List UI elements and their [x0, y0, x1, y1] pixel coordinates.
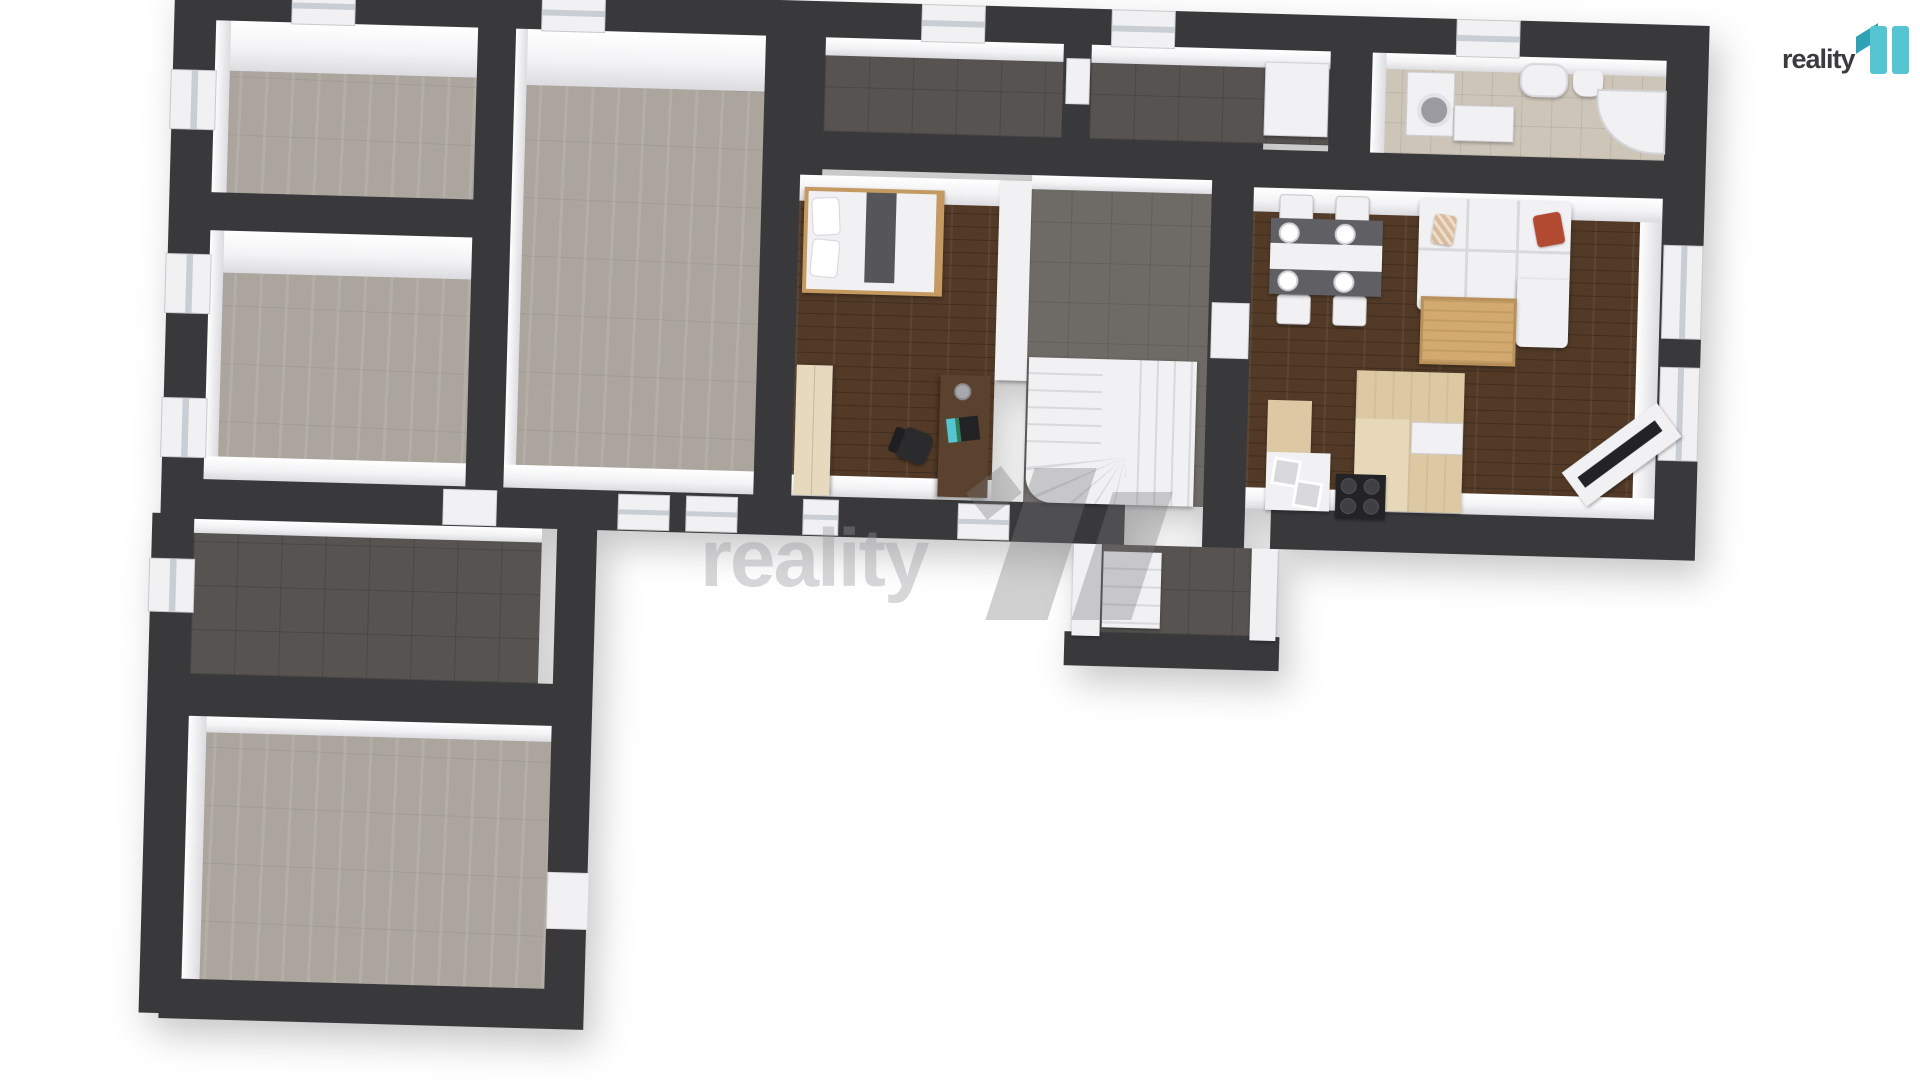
bed-runner [864, 192, 897, 283]
washing-machine [1405, 72, 1455, 137]
brand-logo-digit [1870, 26, 1887, 74]
burner [1363, 498, 1379, 514]
wardrobe [793, 365, 833, 496]
kitchen-sink-unit [1265, 452, 1331, 512]
window [1661, 245, 1704, 340]
sofa-chaise [1516, 279, 1570, 348]
brand-logo: reality [1782, 16, 1914, 82]
washing-machine-door [1417, 93, 1452, 128]
window [1456, 19, 1521, 59]
cooktop [1335, 474, 1386, 519]
wall-face [209, 230, 472, 279]
wall-wing-right [543, 529, 597, 1027]
red-pillow [1532, 211, 1565, 248]
brand-logo-digit [1892, 26, 1909, 74]
room-garage [181, 716, 551, 989]
wall-face [1370, 53, 1387, 153]
window [291, 0, 356, 26]
kitchen-cabinet-front [1411, 422, 1464, 455]
plate [1334, 224, 1356, 246]
room-lower-hallway [190, 519, 542, 684]
vanity-counter [1453, 105, 1514, 143]
plate [1277, 270, 1299, 292]
building-plan [97, 0, 1747, 1080]
coffee-table [1419, 296, 1517, 367]
sink-basin [1291, 479, 1323, 511]
burner [1363, 478, 1379, 494]
bed [802, 187, 945, 297]
window [685, 496, 738, 533]
wall-face [215, 20, 478, 77]
dining-chair [1332, 296, 1367, 327]
floorplan-render: reality reality [0, 0, 1920, 1080]
burner [1340, 478, 1356, 494]
dining-table [1269, 218, 1383, 297]
desk [937, 375, 990, 498]
table-runner [1270, 243, 1383, 272]
wash-basin [1520, 63, 1569, 98]
kitchen-counter [1267, 400, 1312, 453]
stair-winders [1025, 455, 1126, 505]
window [802, 499, 839, 536]
desk-lamp [954, 383, 971, 400]
pillow [811, 197, 841, 236]
garage-door [546, 872, 590, 930]
room-large-empty [503, 29, 766, 495]
window [148, 558, 195, 613]
burner [1340, 498, 1356, 514]
door [442, 489, 497, 526]
pillow [809, 238, 841, 279]
window [957, 503, 1010, 540]
window [921, 4, 986, 44]
brand-logo-text: reality [1782, 44, 1855, 75]
stair-flight [1026, 357, 1103, 461]
window [160, 397, 208, 458]
winder-staircase [1025, 357, 1197, 507]
entry-steps [1102, 551, 1162, 629]
door [1210, 302, 1250, 359]
door [1065, 58, 1090, 105]
vestibule-wall-left [1071, 543, 1102, 636]
window [164, 253, 212, 314]
closet [1263, 62, 1329, 138]
stair-flight [1121, 360, 1197, 507]
dining-chair [1276, 294, 1311, 325]
plate [1278, 222, 1300, 244]
vestibule-wall-right [1249, 548, 1278, 641]
window [541, 0, 606, 33]
window [617, 494, 670, 531]
wall-face [515, 29, 766, 92]
window [1111, 9, 1176, 49]
plate [1333, 272, 1355, 294]
laptop [946, 416, 980, 443]
window [169, 69, 217, 130]
wall-vestibule-bottom [1064, 631, 1280, 671]
